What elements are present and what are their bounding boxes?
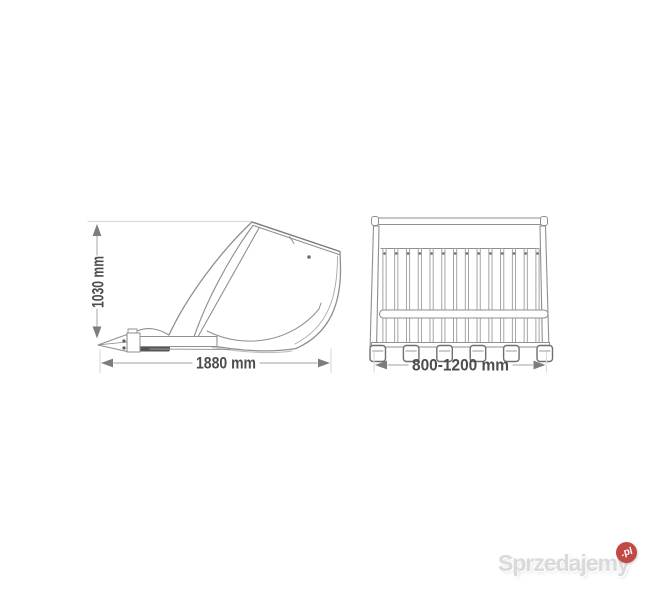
grid-bar [477, 249, 480, 346]
top-bar [377, 218, 541, 225]
grid-bar [524, 249, 527, 346]
bucket-top-edge [252, 222, 340, 252]
left-side-plate [370, 226, 379, 350]
right-side-plate [540, 226, 549, 350]
side-width-dimension-label: 1880 mm [196, 355, 256, 373]
bar-bolt [536, 252, 539, 255]
grid-bar [442, 249, 445, 346]
hole-mark [307, 255, 311, 259]
bar-bolt [407, 252, 410, 255]
grid-bar [418, 249, 421, 346]
weld-tick [290, 237, 295, 244]
bar-bolt [513, 252, 516, 255]
grid-bar [465, 249, 468, 346]
bar-bolt [489, 252, 492, 255]
height-dimension-label: 1030 mm [90, 256, 108, 308]
front-view-drawing [370, 217, 553, 373]
bar-bolt [395, 252, 398, 255]
grid-bars [383, 249, 539, 346]
grid-bar [512, 249, 515, 346]
grid-bar [454, 249, 457, 346]
product-diagram-image: 1030 mm 1880 mm 800-1200 mm Sprzedajemy … [0, 0, 654, 589]
grid-bar [489, 249, 492, 346]
tooth [537, 346, 553, 362]
front-width-dimension-label: 800-1200 mm [412, 357, 509, 375]
arrow-down [93, 327, 102, 339]
tooth-point [98, 335, 127, 352]
bolt [122, 346, 125, 349]
arrow-left [101, 359, 113, 368]
bar-bolt [501, 252, 504, 255]
bucket-rear-edge [296, 252, 341, 349]
bucket-front-curve-inner [192, 226, 253, 344]
arrow-right [318, 359, 330, 368]
bucket-profile [169, 222, 341, 353]
grid-bar [536, 249, 539, 346]
grid-bar [406, 249, 409, 346]
bottom-edge-bar [372, 343, 550, 348]
cross-bar [380, 310, 549, 318]
top-bar-left-cap [372, 217, 379, 226]
bar-bolt [465, 252, 468, 255]
bar-bolt [430, 252, 433, 255]
technical-drawing: 1030 mm 1880 mm 800-1200 mm [0, 0, 654, 589]
bar-bolt [454, 252, 457, 255]
pl-badge-text: .pl [619, 546, 633, 559]
top-bar-right-cap [541, 217, 548, 226]
bar-bolt [477, 252, 480, 255]
watermark-brand-text: Sprzedajemy [498, 550, 629, 576]
bar-bolt [442, 252, 445, 255]
tooth-adapter [127, 333, 140, 352]
tooth [370, 346, 386, 362]
cutting-edge-bar [139, 337, 217, 347]
side-view-drawing [88, 222, 341, 373]
bucket-front-curve-outer [169, 222, 252, 335]
bolt [122, 339, 125, 342]
grid-bar [430, 249, 433, 346]
inner-bottom-arc [207, 303, 321, 341]
bar-bolt [418, 252, 421, 255]
grid-bar [383, 249, 386, 346]
grid-bar [501, 249, 504, 346]
bar-bolt [524, 252, 527, 255]
side-plate-edge [195, 228, 259, 342]
grid-bar [395, 249, 398, 346]
watermark: Sprzedajemy .pl [498, 550, 629, 577]
arrow-up [93, 224, 102, 236]
pl-badge: .pl [616, 542, 637, 563]
bar-bolt [383, 252, 386, 255]
